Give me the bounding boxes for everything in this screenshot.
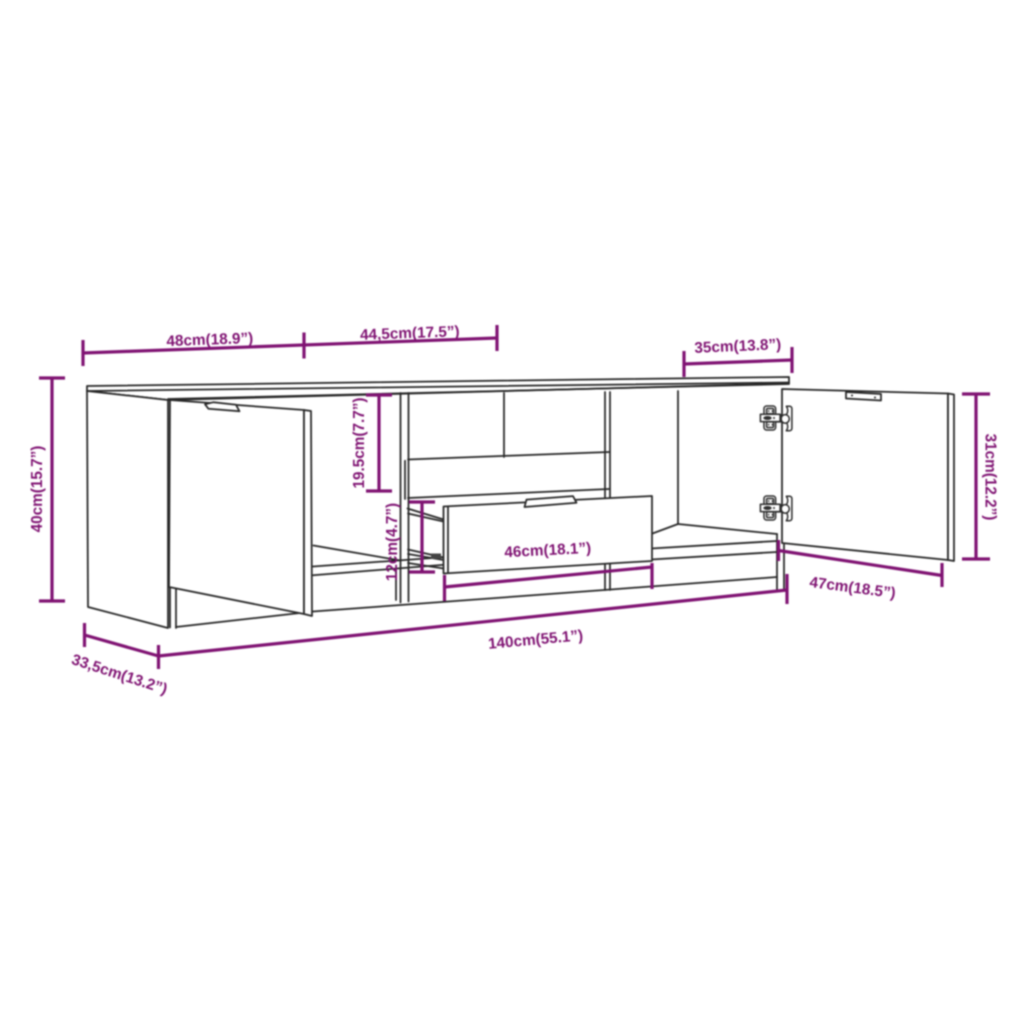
svg-text:140cm(55.1”): 140cm(55.1”) <box>487 627 583 653</box>
svg-text:35cm(13.8”): 35cm(13.8”) <box>694 336 781 357</box>
svg-text:48cm(18.9”): 48cm(18.9”) <box>166 330 253 350</box>
svg-text:47cm(18.5”): 47cm(18.5”) <box>808 574 896 602</box>
svg-text:33,5cm(13.2”): 33,5cm(13.2”) <box>69 651 169 698</box>
svg-text:31cm(12.2”): 31cm(12.2”) <box>982 434 999 521</box>
svg-text:19.5cm(7.7”): 19.5cm(7.7”) <box>351 398 368 489</box>
svg-text:40cm(15.7”): 40cm(15.7”) <box>29 446 46 533</box>
svg-text:12cm(4.7”): 12cm(4.7”) <box>384 503 401 581</box>
